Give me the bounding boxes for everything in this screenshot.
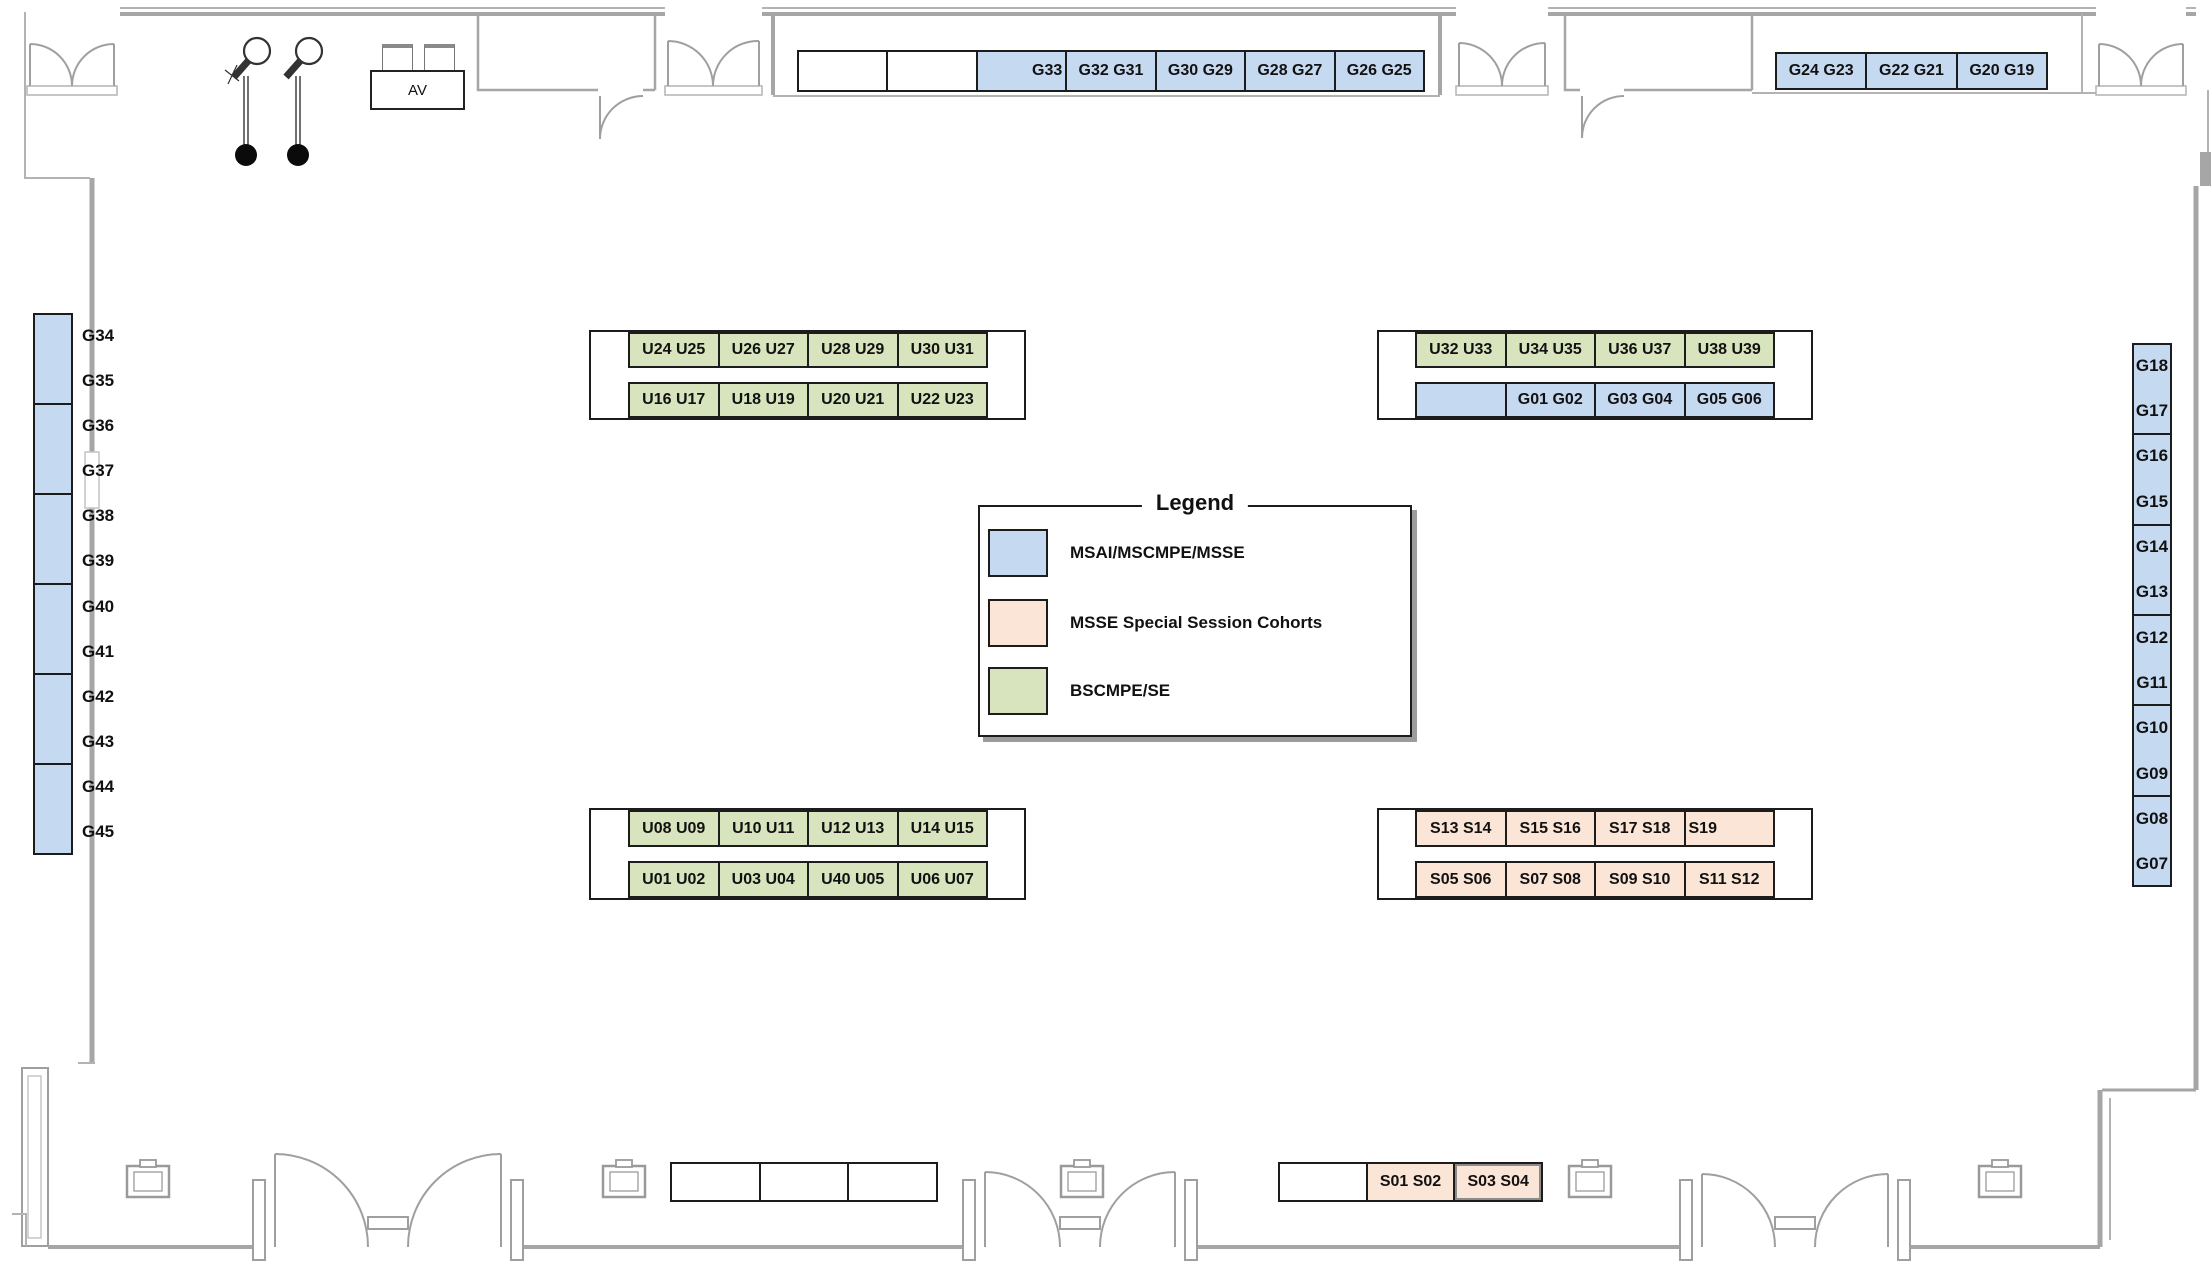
seat-cell: S11 S12 <box>1684 863 1774 896</box>
table-lower-right-top-row: S13 S14S15 S16S17 S18S19 <box>1415 810 1775 847</box>
table-top-right: G24 G23G22 G21G20 G19 <box>1775 52 2048 90</box>
door-icon-double-top-left <box>27 44 117 95</box>
legend-label: BSCMPE/SE <box>1070 681 1170 701</box>
seat-cell: U08 U09 <box>630 812 718 845</box>
table-bottom-right: S01 S02S03 S04 <box>1278 1162 1543 1202</box>
seat-cell: U03 U04 <box>718 863 808 896</box>
seat-cell: G30 G29 <box>1155 52 1244 90</box>
table-lower-left-bottom-row: U01 U02U03 U04U40 U05U06 U07 <box>628 861 988 898</box>
seat-cell: U38 U39 <box>1684 334 1774 366</box>
seat-cell: S13 S14 <box>1417 812 1505 845</box>
door-icon-single-right <box>1582 96 1624 138</box>
legend-item: BSCMPE/SE <box>988 667 1170 715</box>
seat-cell: U24 U25 <box>630 334 718 366</box>
seat-cell: G33 <box>976 52 1065 90</box>
alcove-top-right <box>1565 14 1752 90</box>
door-icon-double-top-right <box>2096 44 2186 95</box>
seat-cell: U16 U17 <box>630 384 718 416</box>
av-equipment-box <box>382 44 413 71</box>
empty-cell <box>2134 345 2170 433</box>
empty-cell <box>2134 704 2170 794</box>
floor-box-icons <box>127 1160 2021 1197</box>
table-upper-left: U24 U25U26 U27U28 U29U30 U31 U16 U17U18 … <box>589 330 1026 420</box>
seat-cell: U22 U23 <box>897 384 987 416</box>
seat-cell: S01 S02 <box>1366 1164 1454 1200</box>
seat-cell: U36 U37 <box>1594 334 1684 366</box>
legend-label: MSAI/MSCMPE/MSSE <box>1070 543 1245 563</box>
floor-box-icon <box>1979 1160 2021 1197</box>
seat-cell: S15 S16 <box>1505 812 1595 845</box>
seat-cell: U01 U02 <box>630 863 718 896</box>
door-icon-single-left <box>600 96 643 139</box>
empty-cell <box>799 52 886 90</box>
seat-cell: S05 S06 <box>1417 863 1505 896</box>
legend-title: Legend <box>1142 490 1248 516</box>
seat-cell: U32 U33 <box>1417 334 1505 366</box>
seat-cell: G26 G25 <box>1334 52 1423 90</box>
legend-item: MSAI/MSCMPE/MSSE <box>988 529 1245 577</box>
empty-cell <box>847 1164 936 1200</box>
floor-box-icon <box>127 1160 169 1197</box>
empty-cell <box>35 315 71 403</box>
av-label: AV <box>408 82 427 99</box>
seat-cell: S19 <box>1684 812 1774 845</box>
seat-cell: U06 U07 <box>897 863 987 896</box>
seat-cell: G01 G02 <box>1505 384 1595 416</box>
table-right-column <box>2132 343 2172 887</box>
door-icon-bottom-right <box>1680 1174 1910 1260</box>
door-icon-double-top-mid <box>665 41 762 95</box>
seat-cell: S03 S04 <box>1453 1164 1541 1200</box>
empty-cell <box>2134 614 2170 704</box>
seat-cell: U30 U31 <box>897 334 987 366</box>
empty-cell <box>2134 433 2170 523</box>
legend-swatch-bscmpe <box>988 667 1048 715</box>
seat-cell: U26 U27 <box>718 334 808 366</box>
seat-cell: U28 U29 <box>807 334 897 366</box>
legend-item: MSSE Special Session Cohorts <box>988 599 1322 647</box>
empty-cell <box>759 1164 848 1200</box>
seat-cell: G20 G19 <box>1956 54 2046 88</box>
table-lower-left: U08 U09U10 U11U12 U13U14 U15 U01 U02U03 … <box>589 808 1026 900</box>
table-lower-left-top-row: U08 U09U10 U11U12 U13U14 U15 <box>628 810 988 847</box>
av-equipment-box <box>424 44 455 71</box>
legend-label: MSSE Special Session Cohorts <box>1070 613 1322 633</box>
seat-cell: G28 G27 <box>1244 52 1333 90</box>
empty-cell <box>35 493 71 583</box>
empty-cell <box>2134 795 2170 885</box>
empty-cell <box>1417 384 1505 416</box>
empty-cell <box>35 763 71 853</box>
floor-box-icon <box>1569 1160 1611 1197</box>
table-lower-right: S13 S14S15 S16S17 S18S19 S05 S06S07 S08S… <box>1377 808 1813 900</box>
table-upper-left-top-row: U24 U25U26 U27U28 U29U30 U31 <box>628 332 988 368</box>
seat-cell: U18 U19 <box>718 384 808 416</box>
seat-cell: U12 U13 <box>807 812 897 845</box>
table-top-middle: G33G32 G31G30 G29G28 G27G26 G25 <box>797 50 1425 92</box>
legend-swatch-msse-special <box>988 599 1048 647</box>
seat-cell: G24 G23 <box>1777 54 1865 88</box>
microphone-icon <box>225 38 270 166</box>
seat-cell: U40 U05 <box>807 863 897 896</box>
seat-cell: S07 S08 <box>1505 863 1595 896</box>
seat-cell: U10 U11 <box>718 812 808 845</box>
seat-cell: S09 S10 <box>1594 863 1684 896</box>
table-upper-right-top-row: U32 U33U34 U35U36 U37U38 U39 <box>1415 332 1775 368</box>
table-bottom-center <box>670 1162 938 1202</box>
door-icon-double-top-right-mid <box>1456 43 1548 95</box>
seat-cell: S17 S18 <box>1594 812 1684 845</box>
table-upper-left-bottom-row: U16 U17U18 U19U20 U21U22 U23 <box>628 382 988 418</box>
empty-cell <box>1280 1164 1366 1200</box>
empty-cell <box>35 583 71 673</box>
top-wall <box>120 8 2196 14</box>
floor-plan: AV G33G32 G31G30 G29G28 G27G26 G25 G24 G… <box>0 0 2211 1274</box>
av-table: AV <box>370 70 465 110</box>
legend: Legend MSAI/MSCMPE/MSSE MSSE Special Ses… <box>978 505 1412 737</box>
table-upper-right: U32 U33U34 U35U36 U37U38 U39 G01 G02G03 … <box>1377 330 1813 420</box>
seat-cell: G05 G06 <box>1684 384 1774 416</box>
floor-box-icon <box>603 1160 645 1197</box>
seat-cell: G32 G31 <box>1065 52 1154 90</box>
empty-cell <box>35 673 71 763</box>
microphone-icon <box>286 38 322 166</box>
seat-cell: U34 U35 <box>1505 334 1595 366</box>
seat-cell: U14 U15 <box>897 812 987 845</box>
seat-cell: G03 G04 <box>1594 384 1684 416</box>
door-icon-bottom-left <box>253 1154 523 1260</box>
floor-box-icon <box>1061 1160 1103 1197</box>
seat-cell: G22 G21 <box>1865 54 1955 88</box>
empty-cell <box>35 403 71 493</box>
legend-swatch-msai <box>988 529 1048 577</box>
seat-cell: U20 U21 <box>807 384 897 416</box>
table-left-column <box>33 313 73 855</box>
empty-cell <box>672 1164 759 1200</box>
alcove-top-left <box>478 14 655 90</box>
empty-cell <box>2134 524 2170 614</box>
table-upper-right-bottom-row: G01 G02G03 G04G05 G06 <box>1415 382 1775 418</box>
table-lower-right-bottom-row: S05 S06S07 S08S09 S10S11 S12 <box>1415 861 1775 898</box>
empty-cell <box>886 52 975 90</box>
